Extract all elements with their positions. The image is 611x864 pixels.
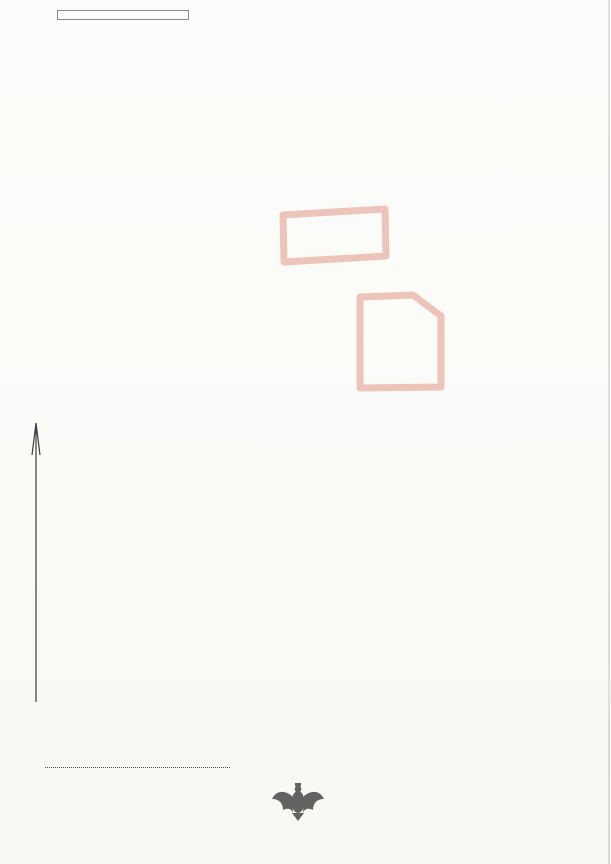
north-arrow [32, 423, 40, 702]
parcel-boundary-lines [30, 63, 601, 713]
buildings [112, 64, 595, 714]
official-round-stamp [243, 747, 353, 857]
highlighted-parcel-2381-1 [283, 209, 386, 262]
highlighted-parcel-2381-5 [360, 295, 441, 388]
document-title-block [140, 10, 462, 12]
scan-edge-artifact [608, 0, 610, 864]
document-page [0, 0, 611, 864]
order-number-dotted-line [45, 754, 230, 768]
handwritten-signature [428, 765, 588, 840]
eagle-emblem-icon [272, 783, 324, 821]
cadastral-map [28, 62, 602, 726]
